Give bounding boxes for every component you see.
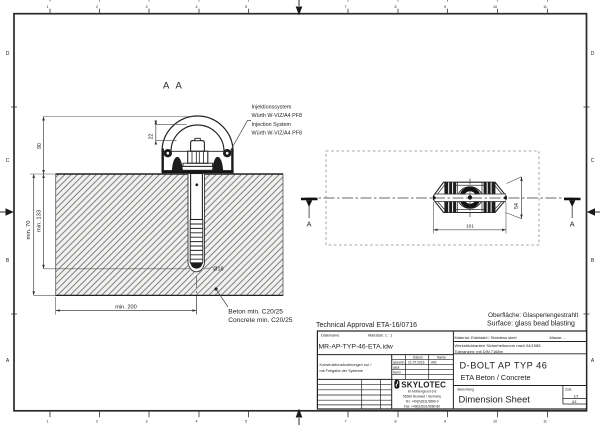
svg-text:Im Mühlengrund 6-8: Im Mühlengrund 6-8 bbox=[408, 390, 437, 394]
svg-text:MR-AP-TYP-46-ETA.idw: MR-AP-TYP-46-ETA.idw bbox=[319, 344, 393, 351]
svg-text:4: 4 bbox=[195, 5, 197, 9]
svg-text:D-BOLT AP TYP 46: D-BOLT AP TYP 46 bbox=[460, 361, 548, 371]
svg-text:Technical Approval ETA-16/0716: Technical Approval ETA-16/0716 bbox=[316, 322, 417, 329]
svg-text:1/1: 1/1 bbox=[574, 394, 579, 398]
svg-text:10: 10 bbox=[493, 420, 497, 424]
svg-text:56566 Neuwied / Germany: 56566 Neuwied / Germany bbox=[403, 395, 441, 399]
svg-text:7: 7 bbox=[344, 5, 346, 9]
svg-text:ETA Beton / Concrete: ETA Beton / Concrete bbox=[461, 373, 531, 382]
svg-text:Injection System: Injection System bbox=[252, 122, 292, 128]
svg-text:8: 8 bbox=[394, 5, 396, 9]
svg-text:3: 3 bbox=[145, 420, 147, 424]
svg-text:gepr.: gepr. bbox=[393, 365, 401, 369]
svg-text:Werkstückkanten Sicherheitsnor: Werkstückkanten Sicherheitsnorm nach 04/… bbox=[455, 343, 542, 348]
svg-text:11: 11 bbox=[543, 420, 547, 424]
svg-text:min. 133: min. 133 bbox=[37, 210, 43, 232]
svg-text:2: 2 bbox=[96, 420, 98, 424]
svg-text:9: 9 bbox=[444, 5, 446, 9]
svg-text:Maßstab: 1 : 1: Maßstab: 1 : 1 bbox=[368, 334, 392, 338]
svg-text:Datum: Datum bbox=[413, 355, 423, 359]
svg-text:gezeich.: gezeich. bbox=[393, 360, 405, 364]
svg-text:SKYLOTEC: SKYLOTEC bbox=[401, 381, 446, 390]
svg-text:Zust.: Zust. bbox=[565, 388, 572, 392]
svg-text:D: D bbox=[591, 51, 595, 57]
svg-text:4: 4 bbox=[195, 420, 197, 424]
svg-text:D: D bbox=[6, 51, 10, 57]
svg-text:A: A bbox=[176, 81, 183, 92]
svg-text:C: C bbox=[6, 158, 10, 164]
svg-text:mit Freigabe der Systeme: mit Freigabe der Systeme bbox=[320, 369, 363, 373]
svg-text:54: 54 bbox=[514, 203, 520, 209]
svg-text:1: 1 bbox=[46, 420, 48, 424]
svg-text:Alfs: Alfs bbox=[431, 360, 437, 364]
svg-text:Benennung: Benennung bbox=[458, 388, 475, 392]
svg-text:Masse: -: Masse: - bbox=[550, 335, 566, 340]
svg-text:9: 9 bbox=[444, 420, 446, 424]
svg-text:A: A bbox=[307, 219, 312, 228]
svg-text:2: 2 bbox=[96, 5, 98, 9]
svg-text:Dimension Sheet: Dimension Sheet bbox=[459, 394, 531, 405]
svg-text:Würth W-VIZ/A4 PF8: Würth W-VIZ/A4 PF8 bbox=[252, 131, 303, 137]
svg-text:Ø18: Ø18 bbox=[213, 267, 223, 273]
svg-text:B: B bbox=[6, 258, 10, 264]
svg-text:min. 70: min. 70 bbox=[26, 220, 32, 239]
svg-text:Oberfläche: Glasperlengestrahl: Oberfläche: Glasperlengestrahlt bbox=[488, 312, 578, 319]
svg-text:1: 1 bbox=[46, 5, 48, 9]
svg-text:A3: A3 bbox=[572, 400, 576, 404]
svg-text:Toleranzen: mit DIN 7168m: Toleranzen: mit DIN 7168m bbox=[455, 349, 504, 354]
svg-text:Surface: glass bead blasting: Surface: glass bead blasting bbox=[487, 321, 575, 328]
svg-text:5: 5 bbox=[245, 420, 247, 424]
svg-text:90: 90 bbox=[37, 143, 43, 149]
svg-text:3: 3 bbox=[145, 5, 147, 9]
svg-text:11: 11 bbox=[543, 5, 547, 9]
svg-text:Dateiname: Dateiname bbox=[321, 334, 339, 338]
svg-text:Beton min. C20/25: Beton min. C20/25 bbox=[228, 309, 283, 316]
svg-text:A: A bbox=[6, 358, 10, 364]
svg-text:10: 10 bbox=[493, 5, 497, 9]
svg-text:8: 8 bbox=[394, 420, 396, 424]
svg-text:22: 22 bbox=[148, 134, 154, 140]
svg-text:Injektionssystem: Injektionssystem bbox=[252, 105, 292, 111]
svg-text:C: C bbox=[591, 158, 595, 164]
svg-text:21.07.2016: 21.07.2016 bbox=[408, 360, 425, 364]
svg-text:A: A bbox=[591, 358, 595, 364]
svg-text:Name: Name bbox=[437, 355, 446, 359]
svg-text:Tel. +49(0)2631/9680-0: Tel. +49(0)2631/9680-0 bbox=[405, 400, 438, 404]
svg-text:Würth W-VIZ/A4 PF8: Würth W-VIZ/A4 PF8 bbox=[252, 113, 303, 119]
svg-text:5: 5 bbox=[245, 5, 247, 9]
svg-text:min. 200: min. 200 bbox=[115, 305, 136, 311]
svg-text:Norm: Norm bbox=[393, 370, 401, 374]
svg-text:Concrete min. C20/25: Concrete min. C20/25 bbox=[228, 317, 292, 324]
svg-text:Konstruktionsänderungen nur /: Konstruktionsänderungen nur / bbox=[320, 363, 373, 367]
svg-text:Fax. +49(0)2631/9680-80: Fax. +49(0)2631/9680-80 bbox=[404, 404, 440, 408]
svg-text:B: B bbox=[591, 258, 595, 264]
svg-text:7: 7 bbox=[344, 420, 346, 424]
svg-text:A: A bbox=[163, 81, 170, 92]
svg-text:A: A bbox=[570, 219, 575, 228]
svg-text:Material: Edelstahl / Stainles: Material: Edelstahl / Stainless steel bbox=[455, 335, 517, 340]
svg-text:101: 101 bbox=[466, 224, 474, 230]
